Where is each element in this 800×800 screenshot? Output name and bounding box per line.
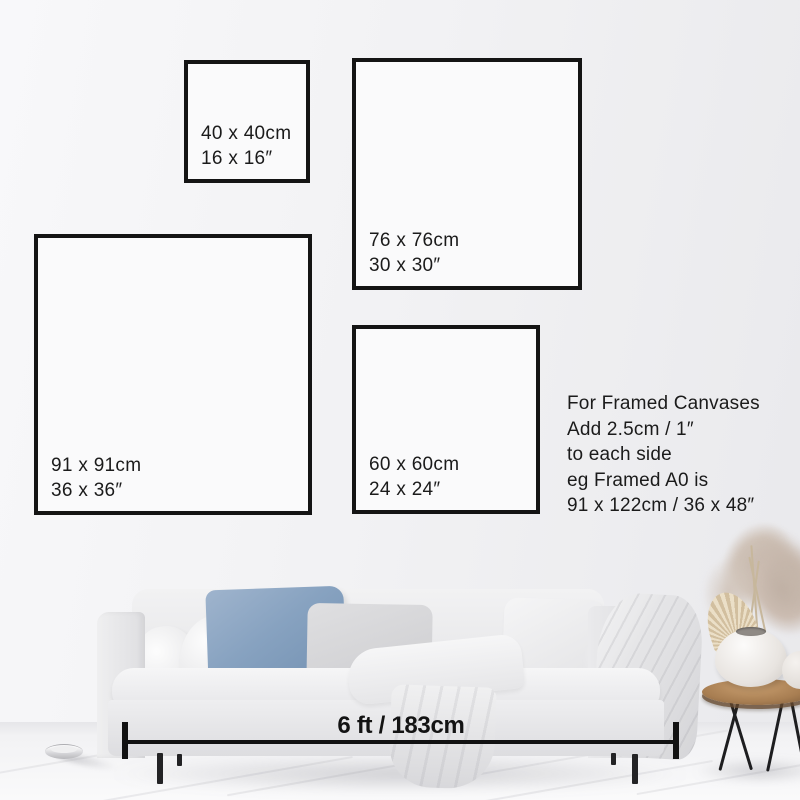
note-line: to each side bbox=[567, 442, 760, 468]
frame-size-cm: 60 x 60cm bbox=[369, 452, 459, 477]
measurement-tick-right bbox=[673, 722, 679, 759]
measurement-line bbox=[125, 740, 677, 744]
frame-40x40: 40 x 40cm 16 x 16″ bbox=[184, 60, 310, 183]
frame-size-inches: 36 x 36″ bbox=[51, 478, 141, 503]
decorative-dish-inner bbox=[51, 746, 77, 753]
frame-91x91-label: 91 x 91cm 36 x 36″ bbox=[51, 453, 141, 503]
note-line: 91 x 122cm / 36 x 48″ bbox=[567, 493, 760, 519]
frame-76x76-label: 76 x 76cm 30 x 30″ bbox=[369, 228, 459, 278]
frame-76x76: 76 x 76cm 30 x 30″ bbox=[352, 58, 582, 290]
frame-91x91: 91 x 91cm 36 x 36″ bbox=[34, 234, 312, 515]
frame-size-cm: 91 x 91cm bbox=[51, 453, 141, 478]
framed-canvas-note: For Framed Canvases Add 2.5cm / 1″ to ea… bbox=[567, 391, 760, 519]
frame-size-inches: 30 x 30″ bbox=[369, 253, 459, 278]
frame-size-inches: 24 x 24″ bbox=[369, 477, 459, 502]
sofa-leg bbox=[177, 754, 182, 766]
frame-60x60: 60 x 60cm 24 x 24″ bbox=[352, 325, 540, 514]
sofa-width-label: 6 ft / 183cm bbox=[330, 712, 472, 740]
size-guide-scene: 40 x 40cm 16 x 16″ 76 x 76cm 30 x 30″ 91… bbox=[0, 0, 800, 800]
frame-40x40-label: 40 x 40cm 16 x 16″ bbox=[201, 121, 291, 171]
sofa-leg bbox=[632, 754, 638, 784]
sofa-leg bbox=[157, 753, 163, 784]
sofa-leg bbox=[611, 753, 616, 765]
large-vase bbox=[715, 629, 787, 687]
note-line: eg Framed A0 is bbox=[567, 468, 760, 494]
frame-size-cm: 40 x 40cm bbox=[201, 121, 291, 146]
frame-size-inches: 16 x 16″ bbox=[201, 146, 291, 171]
note-line: For Framed Canvases bbox=[567, 391, 760, 417]
frame-60x60-label: 60 x 60cm 24 x 24″ bbox=[369, 452, 459, 502]
note-line: Add 2.5cm / 1″ bbox=[567, 417, 760, 443]
vase-opening bbox=[736, 627, 766, 636]
measurement-tick-left bbox=[122, 722, 128, 759]
frame-size-cm: 76 x 76cm bbox=[369, 228, 459, 253]
